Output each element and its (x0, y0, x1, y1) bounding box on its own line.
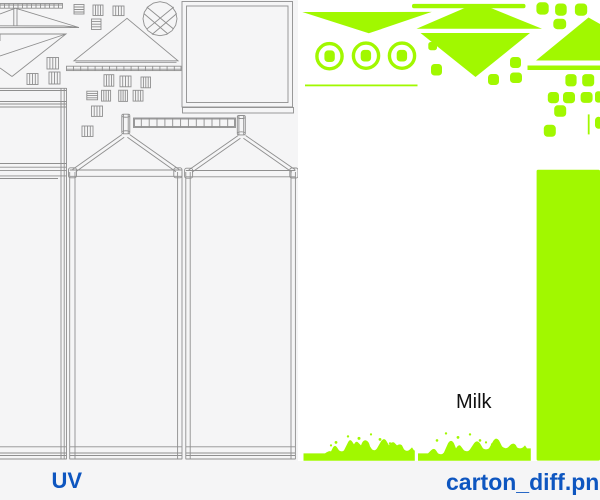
svg-text:Milk: Milk (456, 391, 493, 413)
